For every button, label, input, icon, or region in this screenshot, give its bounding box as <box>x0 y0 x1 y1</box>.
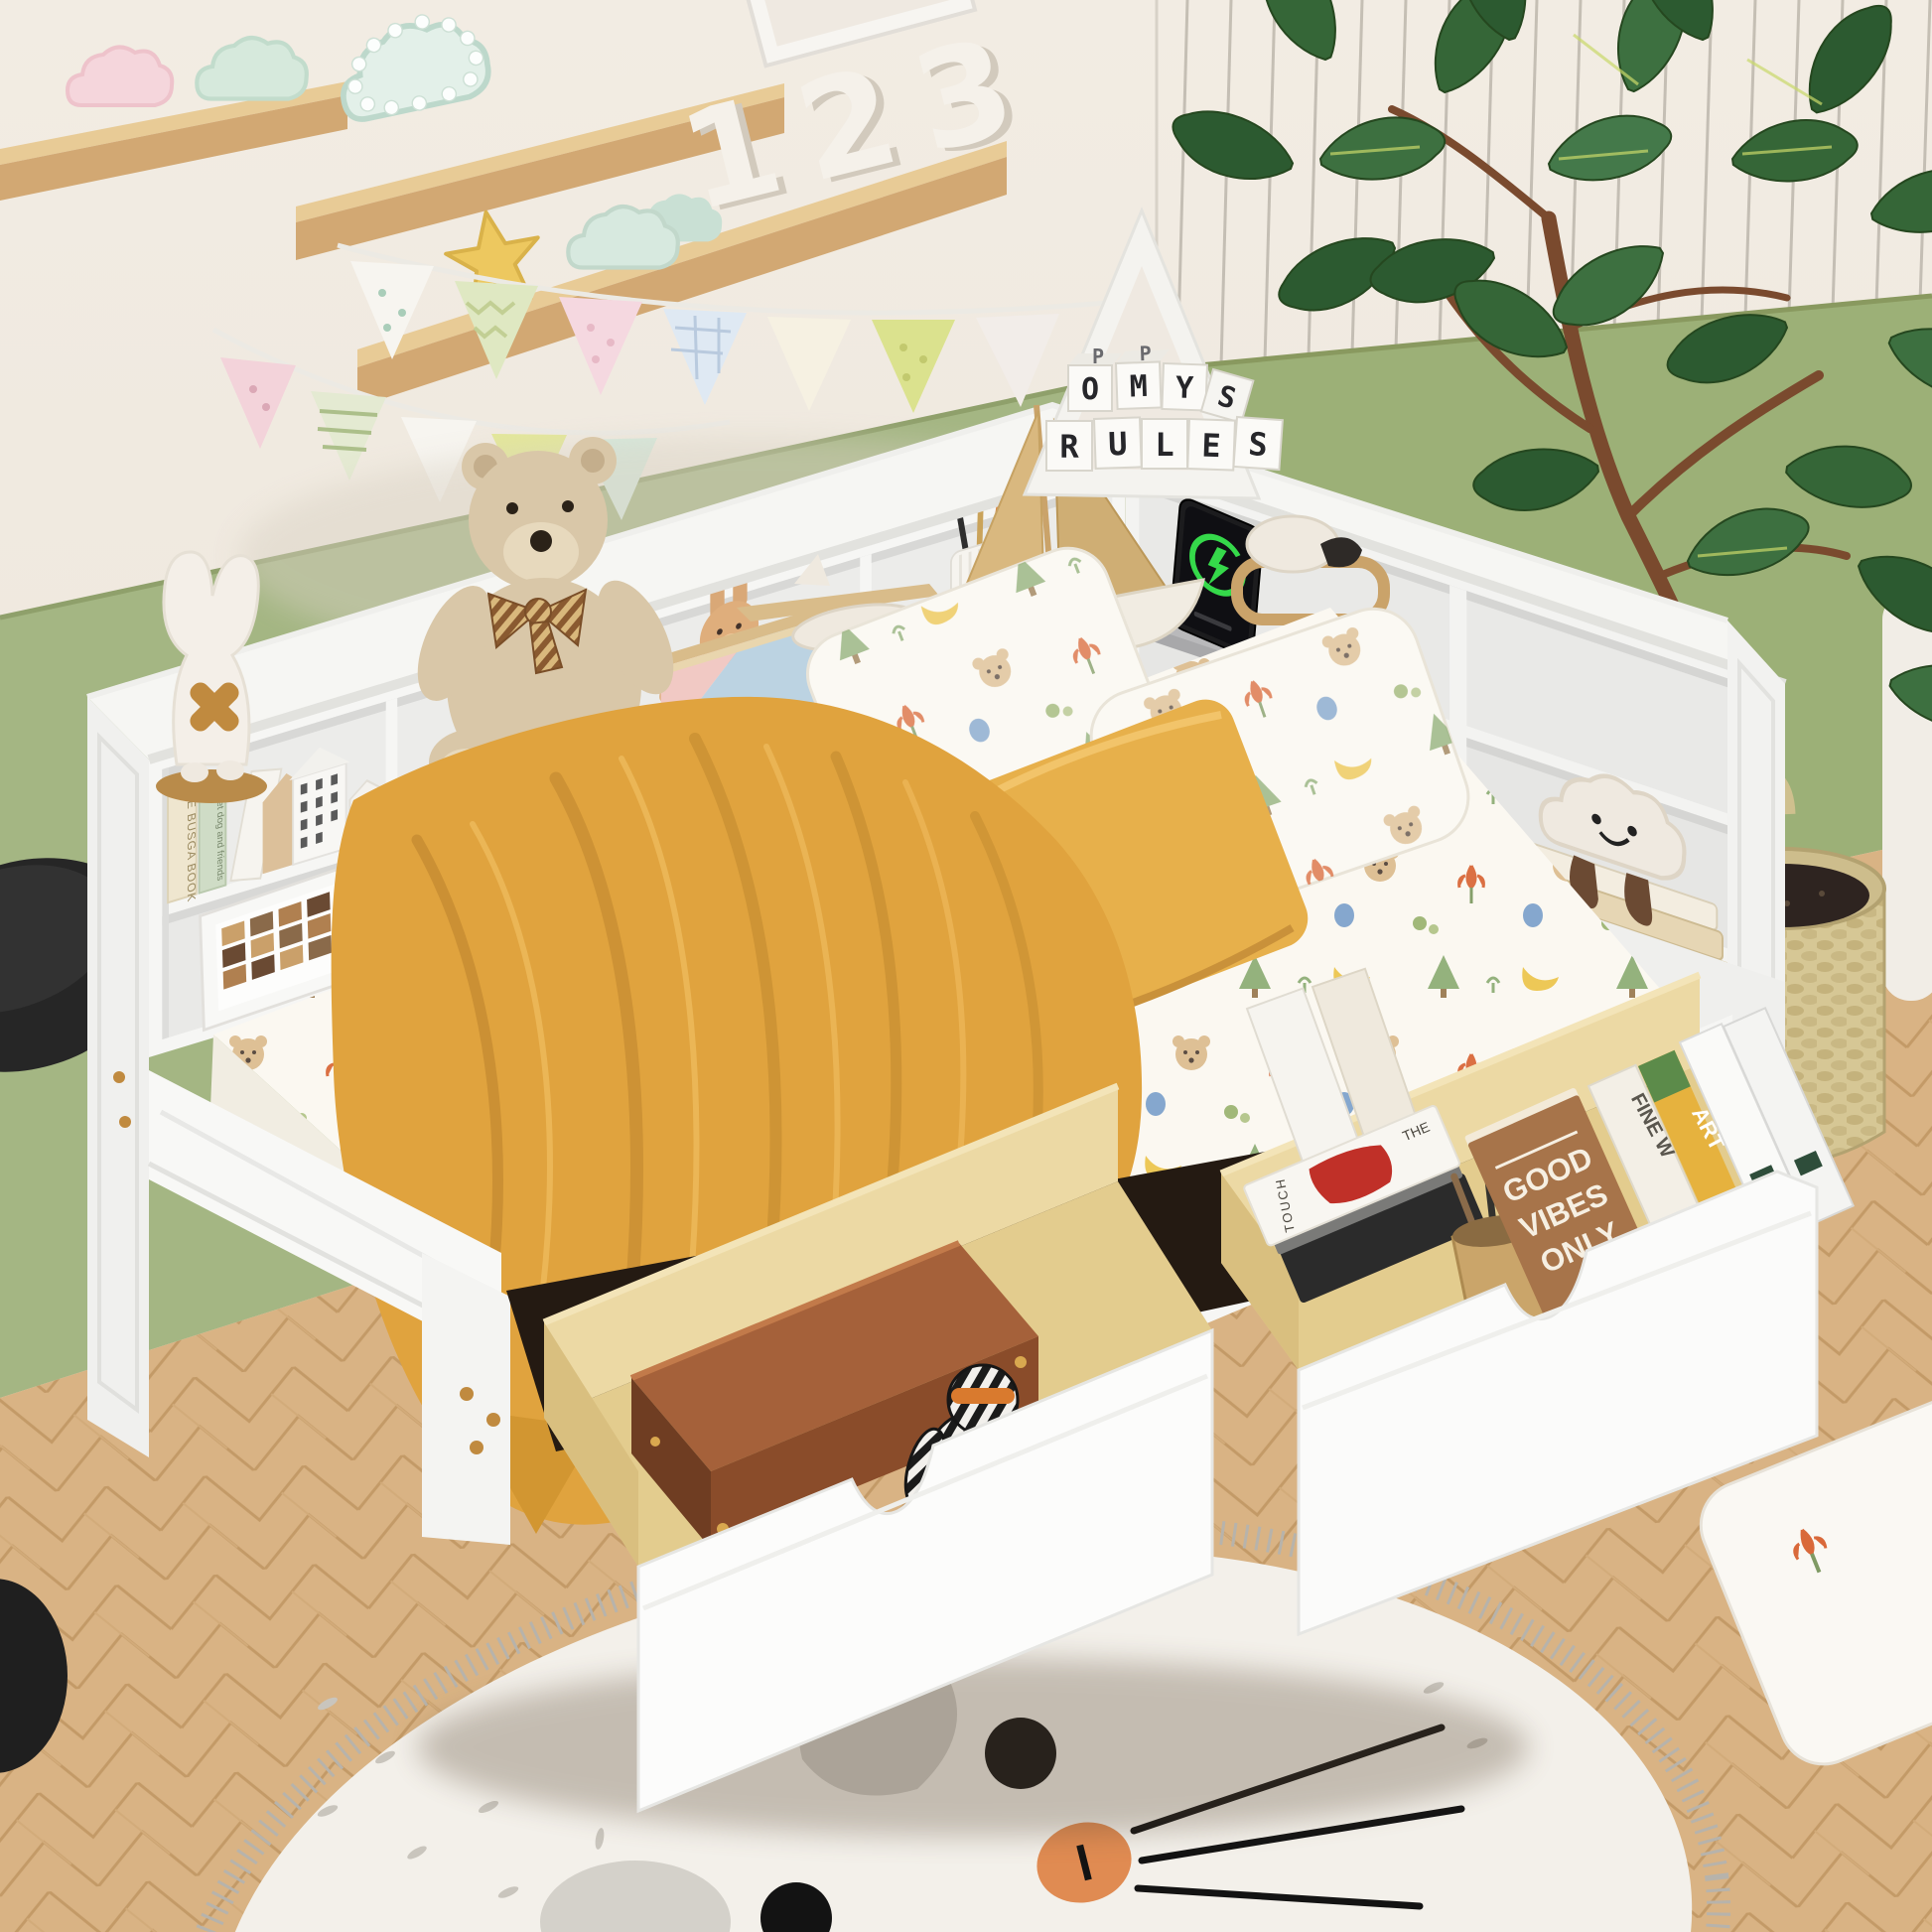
kids-bedroom-photo: 123 123 <box>0 0 1932 1932</box>
block-letter: E <box>1201 426 1222 465</box>
block-letter: L <box>1155 426 1173 464</box>
bookcase-left-panel <box>87 697 149 1457</box>
block-letter: M <box>1129 369 1148 405</box>
scene: 123 123 <box>0 0 1932 1932</box>
white-vase <box>1882 592 1932 1001</box>
block-letter: U <box>1108 425 1129 464</box>
white-house-tall <box>293 763 345 865</box>
block-top-letter: P <box>1139 342 1152 365</box>
toy-glasses <box>951 1388 1015 1404</box>
block-top-letter: P <box>1092 345 1104 368</box>
block-letter: Y <box>1174 370 1193 406</box>
block-letter: S <box>1247 425 1269 464</box>
block-letter: R <box>1059 428 1079 466</box>
block-letter: O <box>1081 372 1099 407</box>
